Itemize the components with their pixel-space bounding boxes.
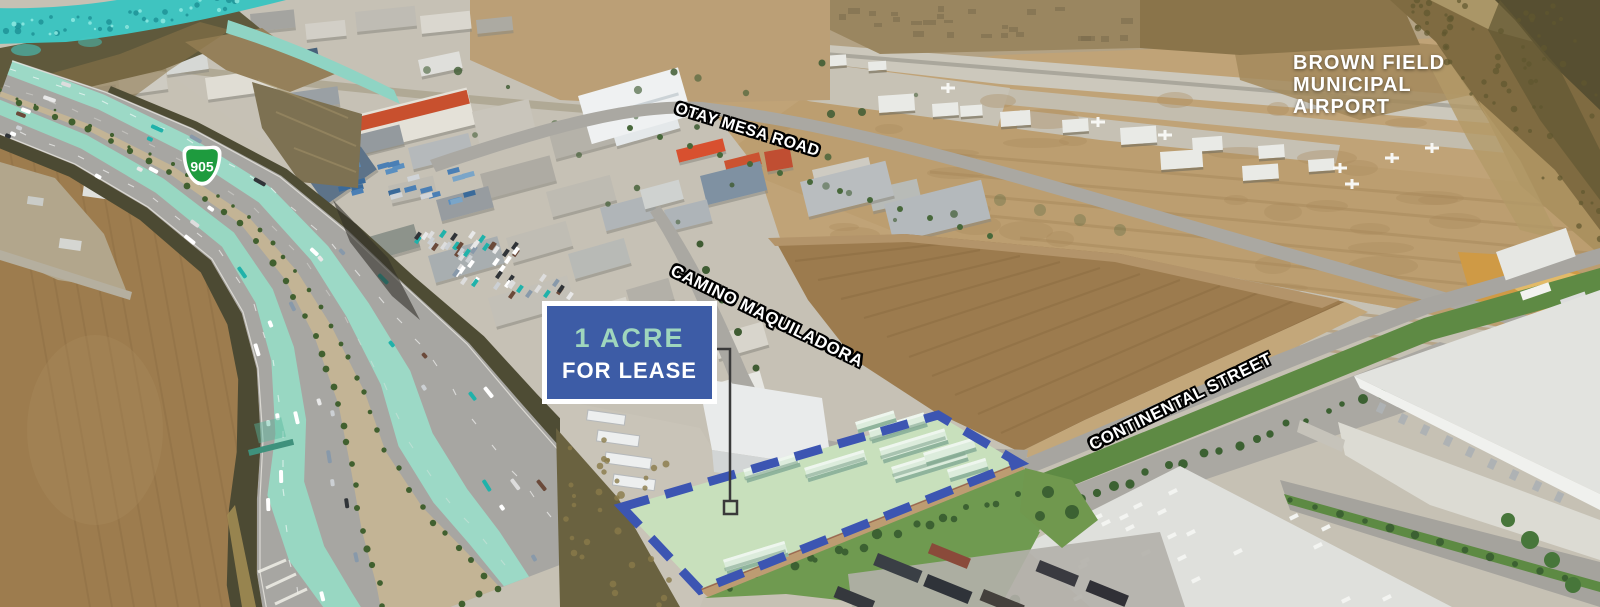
svg-text:905: 905 — [190, 159, 214, 175]
